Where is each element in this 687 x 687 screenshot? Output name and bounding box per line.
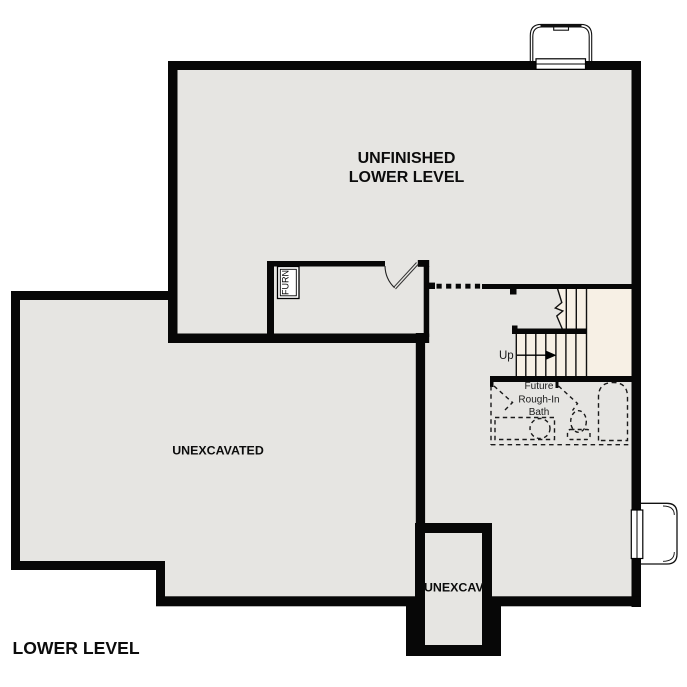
svg-text:LOWER LEVEL: LOWER LEVEL [349, 169, 465, 186]
svg-text:LOWER LEVEL: LOWER LEVEL [13, 638, 140, 658]
svg-text:UNFINISHED: UNFINISHED [358, 150, 456, 167]
svg-text:UNEXCAV: UNEXCAV [424, 580, 484, 594]
svg-text:Bath: Bath [529, 407, 550, 418]
svg-text:Future: Future [525, 381, 554, 392]
svg-text:Rough-In: Rough-In [518, 395, 559, 406]
svg-text:FURN: FURN [281, 270, 291, 295]
svg-text:UNEXCAVATED: UNEXCAVATED [172, 443, 264, 457]
svg-text:Up: Up [499, 350, 514, 362]
